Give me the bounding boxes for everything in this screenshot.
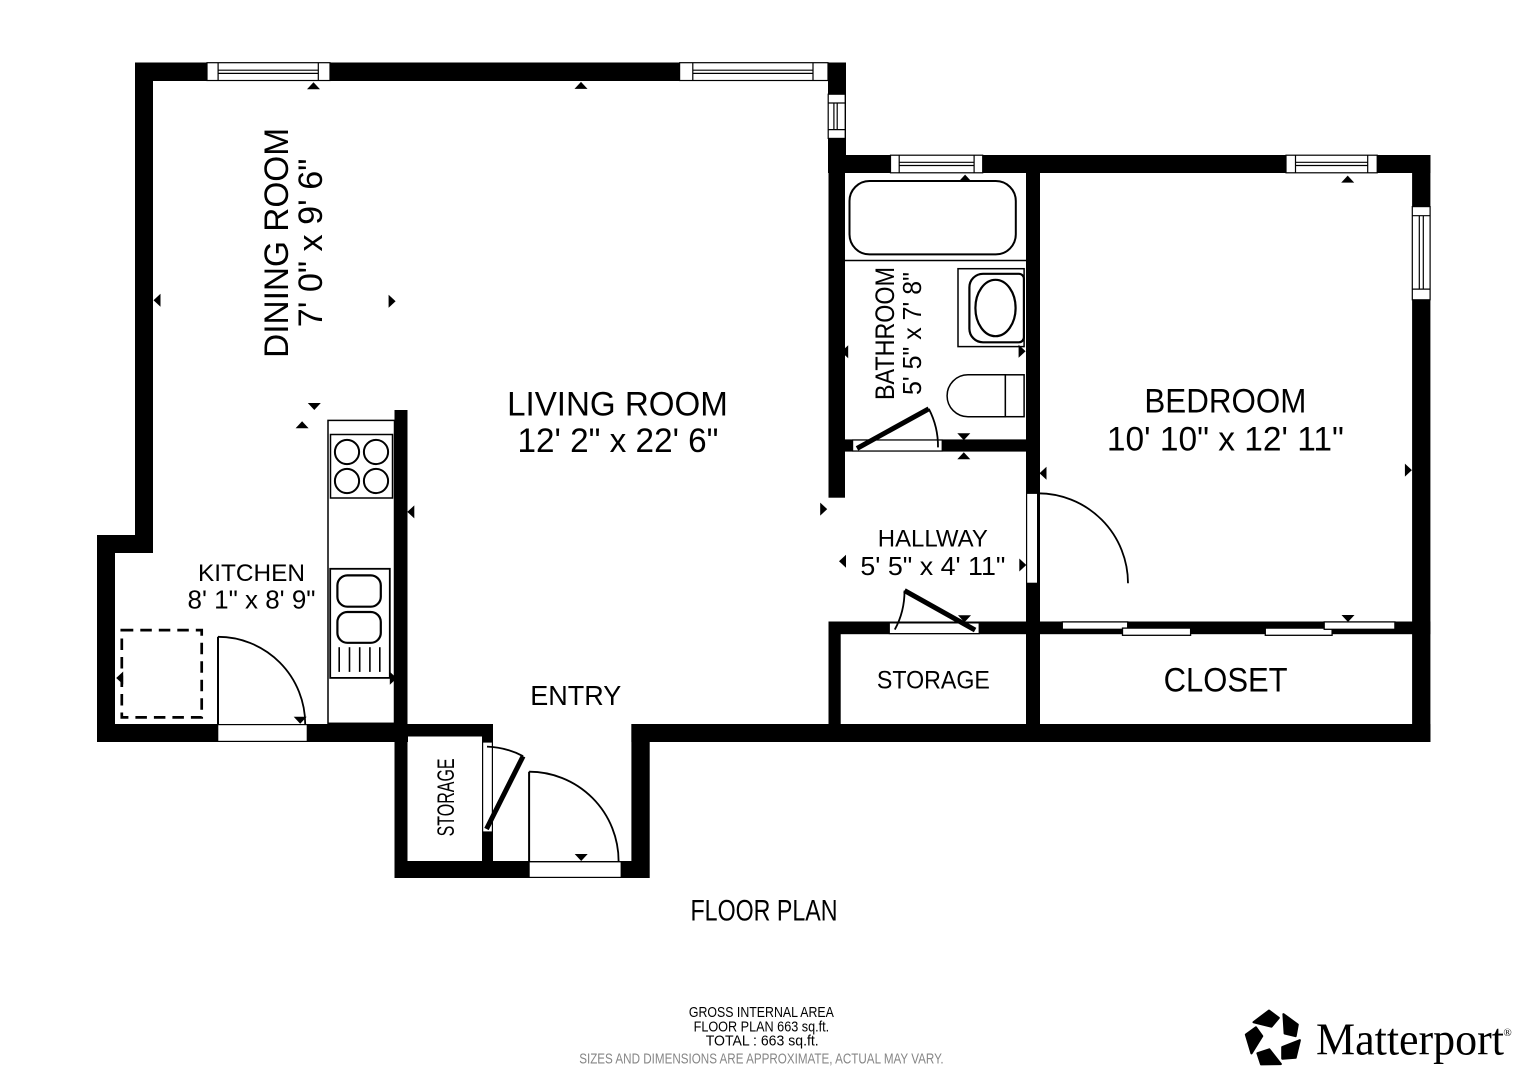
svg-text:STORAGE: STORAGE — [433, 758, 460, 836]
svg-text:BEDROOM: BEDROOM — [1144, 382, 1306, 420]
svg-text:SIZES AND DIMENSIONS ARE APPRO: SIZES AND DIMENSIONS ARE APPROXIMATE, AC… — [579, 1052, 943, 1068]
svg-text:DINING ROOM: DINING ROOM — [258, 128, 296, 358]
svg-text:GROSS INTERNAL AREA: GROSS INTERNAL AREA — [689, 1005, 834, 1021]
svg-text:®: ® — [1503, 1027, 1511, 1039]
svg-text:CLOSET: CLOSET — [1164, 662, 1288, 700]
svg-text:LIVING ROOM: LIVING ROOM — [507, 386, 728, 424]
svg-text:Matterport: Matterport — [1316, 1015, 1504, 1065]
svg-text:TOTAL : 663 sq.ft.: TOTAL : 663 sq.ft. — [706, 1034, 819, 1050]
svg-text:BATHROOM: BATHROOM — [870, 267, 900, 400]
svg-text:10' 10" x 12' 11": 10' 10" x 12' 11" — [1107, 421, 1344, 459]
svg-text:8' 1" x 8' 9": 8' 1" x 8' 9" — [188, 584, 316, 614]
svg-text:STORAGE: STORAGE — [877, 667, 990, 695]
svg-text:12' 2" x 22' 6": 12' 2" x 22' 6" — [518, 422, 719, 460]
svg-text:7' 0" x 9' 6": 7' 0" x 9' 6" — [292, 159, 330, 328]
svg-text:5' 5" x 7' 8": 5' 5" x 7' 8" — [897, 272, 927, 395]
svg-text:FLOOR PLAN: FLOOR PLAN — [691, 894, 838, 927]
svg-text:KITCHEN: KITCHEN — [198, 560, 305, 587]
svg-text:ENTRY: ENTRY — [530, 680, 621, 711]
svg-text:HALLWAY: HALLWAY — [878, 526, 988, 553]
svg-text:5' 5" x 4' 11": 5' 5" x 4' 11" — [860, 551, 1005, 581]
